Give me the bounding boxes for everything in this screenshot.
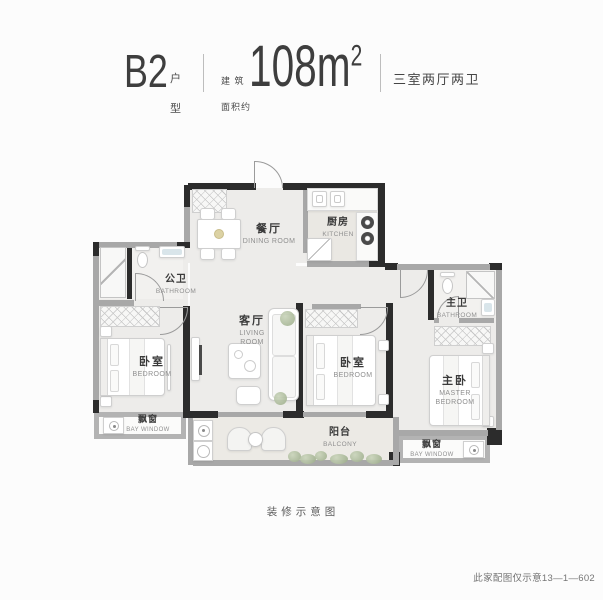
room-label-bedroom-middle: 卧室 BEDROOM [322, 357, 384, 380]
plant-icon [280, 311, 295, 326]
room-label-dining-en: DINING ROOM [233, 237, 305, 246]
layout-summary: 三室两厅两卫 [393, 69, 480, 88]
toilet-icon [442, 278, 453, 294]
room-label-balcony-cn: 阳台 [308, 426, 372, 439]
nightstand-icon [482, 343, 494, 354]
room-label-public-bathroom-cn: 公卫 [145, 273, 207, 286]
area-prefix-line1: 建 筑 [221, 75, 251, 88]
bay-window-icon [463, 441, 484, 458]
plant-icon [288, 451, 301, 462]
room-label-kitchen-en: KITCHEN [308, 230, 368, 239]
coffee-table-icon [228, 343, 261, 379]
room-label-master-bedroom-en2: BEDROOM [424, 398, 486, 407]
nightstand-icon [378, 394, 389, 405]
nightstand-icon [378, 340, 389, 351]
room-label-kitchen: 厨房 KITCHEN [308, 216, 368, 239]
room-label-bedroom-middle-cn: 卧室 [322, 357, 384, 370]
room-label-bedroom-left-cn: 卧室 [121, 356, 183, 369]
disclaimer-note: 此家配图仅示意13—1—602 [430, 570, 595, 584]
corner-shower-icon [466, 271, 495, 299]
toilet-tank-icon [135, 246, 150, 251]
room-label-living-cn: 客厅 [222, 315, 282, 328]
wall-kitchen-right [378, 183, 385, 267]
room-label-master-bathroom: 主卫 BATHROOM [426, 297, 488, 320]
wall-corner-bottom-right [487, 428, 502, 445]
room-label-balcony: 阳台 BALCONY [308, 426, 372, 449]
room-label-master-bedroom-cn: 主卧 [424, 375, 486, 388]
area-value-wrap: 108m2 [249, 38, 362, 96]
room-label-public-bathroom-en: BATHROOM [145, 287, 207, 296]
tv-icon [199, 345, 202, 375]
room-label-master-bedroom: 主卧 MASTER BEDROOM [424, 375, 486, 407]
wall-balcony-right [393, 417, 399, 465]
balcony-sliding-door [218, 412, 283, 417]
washing-machine-icon [193, 441, 213, 461]
wall-bedmid-bottom [366, 411, 393, 418]
master-suite-door-leaf-icon [400, 270, 401, 298]
kitchen-counter-corner [307, 238, 332, 261]
wall-bath-divider [127, 244, 132, 299]
shower-icon [100, 247, 126, 298]
toilet-tank-icon [440, 272, 455, 277]
wall-balcony-black2 [283, 411, 304, 418]
plant-icon [330, 454, 348, 464]
room-label-living-en1: LIVING [222, 329, 282, 338]
room-label-bay-right-cn: 飘窗 [400, 439, 464, 450]
wall-kitchen-bottom-stub [368, 260, 385, 267]
chair-icon [221, 248, 236, 260]
wall-master-bottom [393, 430, 488, 436]
wall-dining-left-lower [184, 207, 190, 242]
entry-door-leaf-icon [254, 161, 255, 188]
area-value: 108m [249, 34, 351, 99]
plant-icon [315, 451, 327, 461]
room-label-bay-left-cn: 飘窗 [115, 414, 181, 425]
wardrobe-middle-hatch-icon [305, 309, 358, 328]
plant-icon [366, 454, 382, 464]
balcony-table-icon [248, 432, 263, 447]
wall-dining-left-top [184, 185, 190, 207]
room-label-living-en2: ROOM [222, 338, 282, 347]
room-label-bedroom-middle-en: BEDROOM [322, 371, 384, 380]
room-label-bedroom-left: 卧室 BEDROOM [121, 356, 183, 379]
kitchen-sink-icon [330, 191, 345, 207]
wall-right-outer [496, 270, 502, 430]
ottoman-icon [236, 386, 261, 405]
washing-machine-icon [193, 420, 213, 441]
plan-type-label: 户 型 [170, 57, 181, 132]
bedmid-balcony-window [303, 412, 366, 417]
wall-kitchen-bottom [307, 261, 369, 267]
toilet-icon [137, 252, 148, 268]
plan-type-top: 户 [170, 72, 181, 87]
header-divider-right [380, 54, 381, 92]
room-label-master-bathroom-cn: 主卫 [426, 297, 488, 310]
balcony-chair-icon [261, 427, 286, 451]
room-label-master-bathroom-en: BATHROOM [426, 311, 488, 320]
room-label-bay-left: 飘窗 BAY WINDOW [115, 414, 181, 435]
floorplan-page: B2 户 型 建 筑 面积约 108m2 三室两厅两卫 [0, 0, 603, 600]
plant-icon [300, 454, 316, 464]
area-superscript: 2 [351, 40, 363, 73]
plan-name: B2 [124, 48, 168, 94]
room-label-living: 客厅 LIVING ROOM [222, 315, 282, 347]
public-bath-door-leaf-icon [135, 273, 136, 301]
chair-icon [200, 248, 215, 260]
room-label-public-bathroom: 公卫 BATHROOM [145, 273, 207, 296]
plant-icon [350, 451, 364, 462]
area-prefix: 建 筑 面积约 [221, 62, 251, 127]
wardrobe-left-hatch-icon [100, 306, 160, 327]
wall-living-bedleft [183, 306, 190, 418]
room-label-bedroom-left-en: BEDROOM [121, 370, 183, 379]
room-label-dining: 餐厅 DINING ROOM [233, 223, 305, 246]
room-label-master-bedroom-en1: MASTER [424, 389, 486, 398]
floor-hallway [296, 266, 397, 306]
area-prefix-line2: 面积约 [221, 101, 251, 114]
bedroom-left-door-leaf-icon [160, 307, 188, 308]
wall-suite-top-right [489, 263, 502, 270]
room-label-bay-right: 飘窗 BAY WINDOW [400, 439, 464, 460]
room-label-dining-cn: 餐厅 [233, 223, 305, 236]
room-label-bay-right-en: BAY WINDOW [400, 451, 464, 460]
header-divider-left [203, 54, 204, 92]
room-label-balcony-en: BALCONY [308, 440, 372, 449]
wall-balcony-black1 [185, 411, 218, 418]
centerpiece-icon [214, 229, 224, 239]
entry-door-arc-icon [255, 161, 283, 188]
bedroom-middle-door-leaf-icon [360, 307, 388, 308]
decor-caption: 装修示意图 [251, 504, 355, 519]
nightstand-icon [100, 396, 112, 407]
nightstand-icon [100, 326, 112, 337]
plan-type-bottom: 型 [170, 102, 181, 117]
plant-icon [274, 392, 287, 405]
wall-left-seg [93, 399, 99, 413]
room-label-kitchen-cn: 厨房 [308, 216, 368, 229]
wall-left-outer [93, 256, 99, 400]
basin-icon [159, 246, 185, 258]
room-label-bay-left-en: BAY WINDOW [115, 426, 181, 435]
kitchen-sink-icon [312, 191, 327, 207]
